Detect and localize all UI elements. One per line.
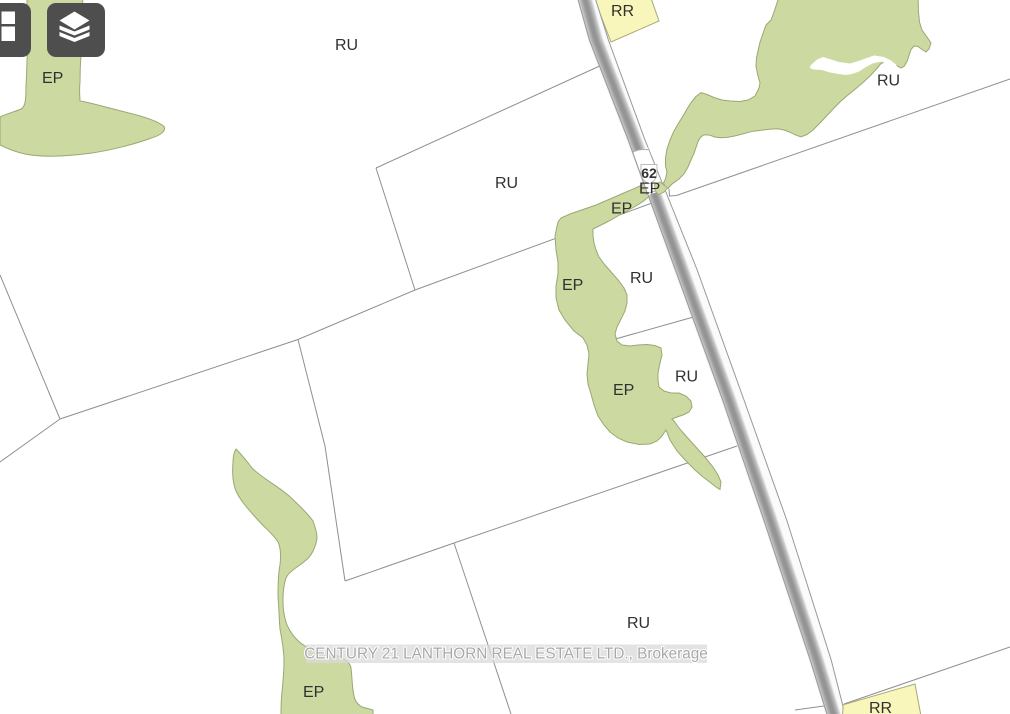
svg-text:RU: RU <box>335 37 358 54</box>
svg-text:CENTURY 21 LANTHORN REAL ESTAT: CENTURY 21 LANTHORN REAL ESTATE LTD., Br… <box>304 646 708 663</box>
svg-text:RU: RU <box>495 175 518 192</box>
svg-text:RU: RU <box>675 369 698 386</box>
svg-text:RU: RU <box>877 73 900 90</box>
svg-text:RR: RR <box>611 3 634 20</box>
svg-text:EP: EP <box>42 70 63 87</box>
svg-text:EP: EP <box>303 684 324 701</box>
svg-text:EP: EP <box>613 382 634 399</box>
svg-text:EP: EP <box>562 277 583 294</box>
svg-text:RU: RU <box>630 270 653 287</box>
svg-text:RR: RR <box>869 700 892 714</box>
svg-text:EP: EP <box>639 181 660 198</box>
svg-text:RU: RU <box>627 615 650 632</box>
svg-text:EP: EP <box>611 201 632 218</box>
svg-text:62: 62 <box>641 165 657 181</box>
